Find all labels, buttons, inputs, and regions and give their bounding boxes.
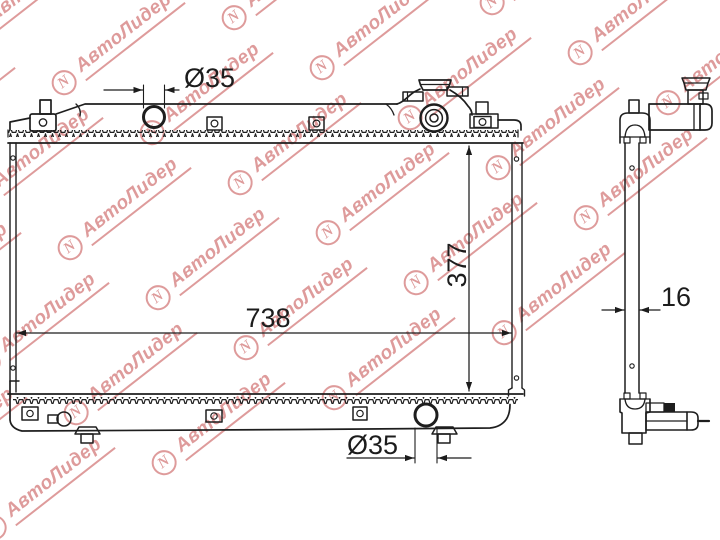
- side-view: [620, 78, 712, 444]
- dim-label-side-depth: 16: [661, 282, 691, 312]
- catalog-drawing-page: NАвтоЛидерNАвтоЛидерNАвтоЛидерNАвтоЛидер…: [0, 0, 720, 540]
- top-header-tabs: [207, 117, 324, 130]
- header-serration-top: [8, 130, 523, 143]
- bottom-header-tabs: [22, 407, 367, 422]
- mount-foot-right: [432, 427, 457, 443]
- core-side-plate-left: [10, 143, 19, 392]
- top-left-peg: [40, 100, 51, 114]
- dim-label-core-width: 738: [245, 303, 290, 333]
- side-top-pipe: [649, 104, 712, 130]
- dim-label-bottom-diameter: Ø35: [347, 430, 398, 460]
- mount-foot-left: [75, 427, 100, 443]
- top-inlet-circle: [144, 107, 165, 128]
- dim-core-height: 377: [442, 146, 472, 391]
- dim-top-pipe-diameter: Ø35: [104, 63, 235, 108]
- drain-plug: [48, 412, 71, 426]
- filler-neck: [403, 80, 468, 132]
- dim-label-top-diameter: Ø35: [184, 63, 235, 93]
- top-left-bracket: [30, 114, 56, 131]
- side-filler-cap: [682, 78, 710, 104]
- side-core-strip: [625, 143, 639, 393]
- radiator-drawing: Ø35 377 738 16 Ø35: [0, 0, 720, 540]
- side-top-bracket: [620, 100, 650, 143]
- side-pipe-clip: [664, 403, 675, 412]
- bottom-tank: [10, 381, 510, 443]
- top-right-bracket: [470, 102, 498, 128]
- header-serration-bottom: [8, 394, 523, 404]
- dim-side-depth: 16: [602, 282, 691, 312]
- core-side-plate-right: [509, 143, 525, 396]
- dim-core-width: 738: [17, 303, 511, 333]
- dim-label-core-height: 377: [442, 242, 472, 287]
- side-bottom-pipe: [646, 403, 709, 430]
- bottom-outlet-circle: [415, 404, 437, 426]
- tank-dimple-right: [386, 104, 394, 115]
